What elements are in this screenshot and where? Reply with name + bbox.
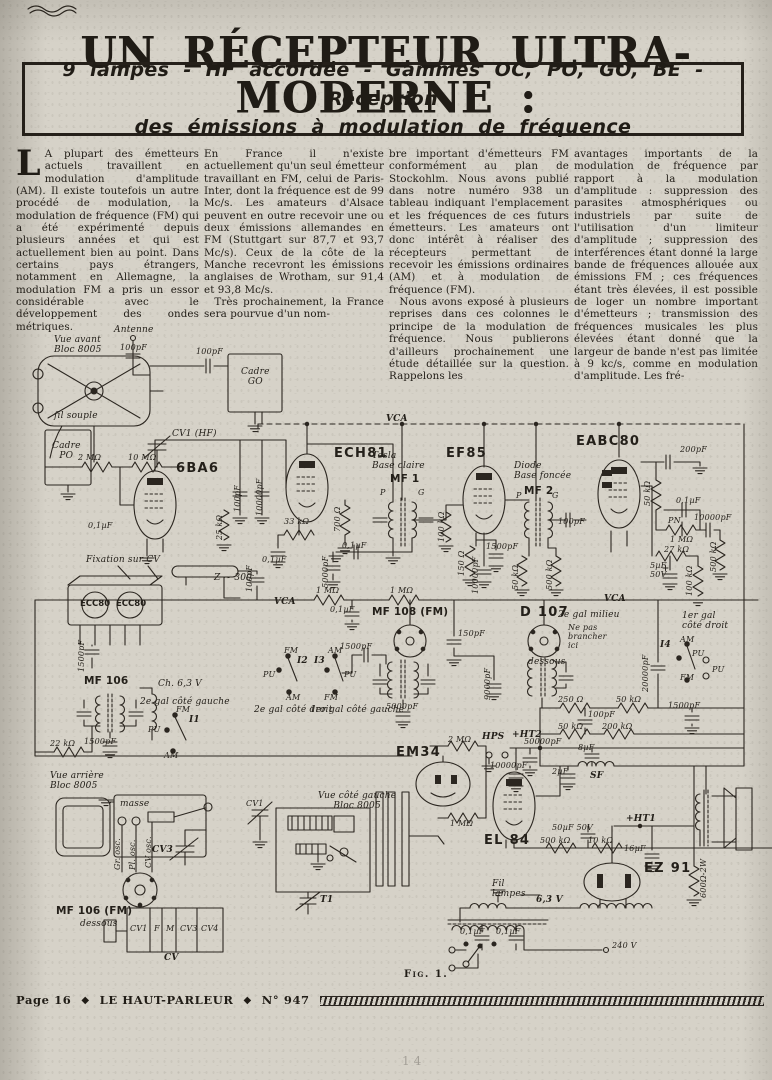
diamond-icon: ◆ bbox=[243, 995, 251, 1006]
footer-page: Page 16 bbox=[16, 993, 71, 1007]
subtitle-line1: 9 lampes - HF accordée - Gammes OC, PO, … bbox=[25, 56, 741, 113]
article-column-1-text: A plupart des émetteurs actuels travaill… bbox=[16, 148, 199, 333]
figure-caption: Fig. 1. bbox=[404, 969, 448, 980]
subtitle-line2: des émissions à modulation de fréquence bbox=[25, 113, 741, 142]
corner-squiggle-icon bbox=[28, 6, 76, 12]
diamond-icon: ◆ bbox=[81, 995, 89, 1006]
faint-page-number: 14 bbox=[402, 1054, 425, 1068]
page-footer: Page 16 ◆ LE HAUT-PARLEUR ◆ N° 947 bbox=[16, 993, 764, 1007]
drop-cap: L bbox=[16, 150, 41, 178]
article-column-1: LA plupart des émetteurs actuels travail… bbox=[16, 148, 199, 333]
subtitle-box: 9 lampes - HF accordée - Gammes OC, PO, … bbox=[22, 62, 744, 136]
footer-issue: N° 947 bbox=[262, 993, 310, 1007]
article-column-3: bre important d'émetteurs FM conformémen… bbox=[389, 148, 569, 383]
article-column-2: En France il n'existe actuellement qu'un… bbox=[204, 148, 384, 321]
article-column-4: avantages importants de la modulation de… bbox=[574, 148, 758, 383]
footer-magazine: LE HAUT-PARLEUR bbox=[100, 993, 234, 1007]
footer-divider bbox=[320, 996, 764, 1006]
